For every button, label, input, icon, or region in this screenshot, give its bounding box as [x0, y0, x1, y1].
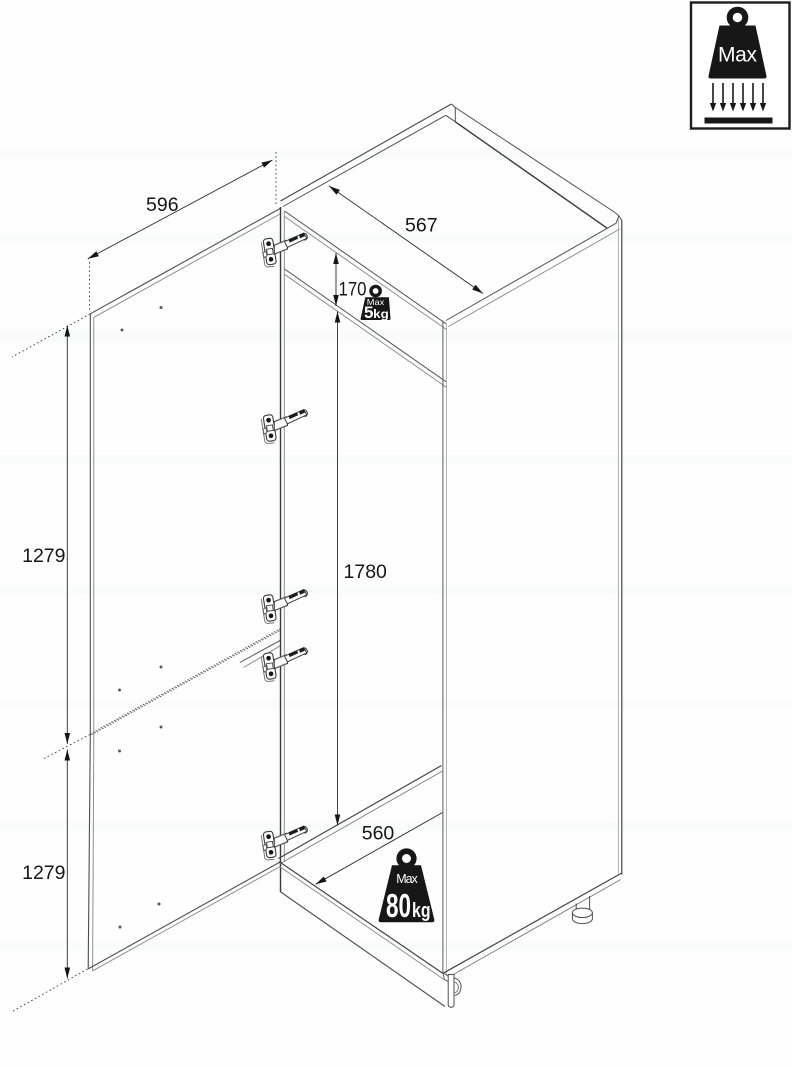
svg-text:Max: Max [718, 44, 758, 67]
svg-text:1780: 1780 [344, 561, 388, 583]
svg-text:1279: 1279 [22, 862, 65, 884]
svg-text:1279: 1279 [22, 545, 65, 567]
svg-text:560: 560 [362, 823, 395, 845]
svg-text:596: 596 [146, 194, 179, 216]
svg-text:kg: kg [373, 309, 389, 321]
svg-text:170: 170 [339, 279, 367, 301]
svg-text:567: 567 [405, 215, 438, 237]
svg-text:5: 5 [364, 303, 373, 322]
svg-text:Max: Max [396, 872, 418, 886]
svg-text:80: 80 [386, 887, 411, 924]
svg-text:kg: kg [412, 900, 431, 922]
